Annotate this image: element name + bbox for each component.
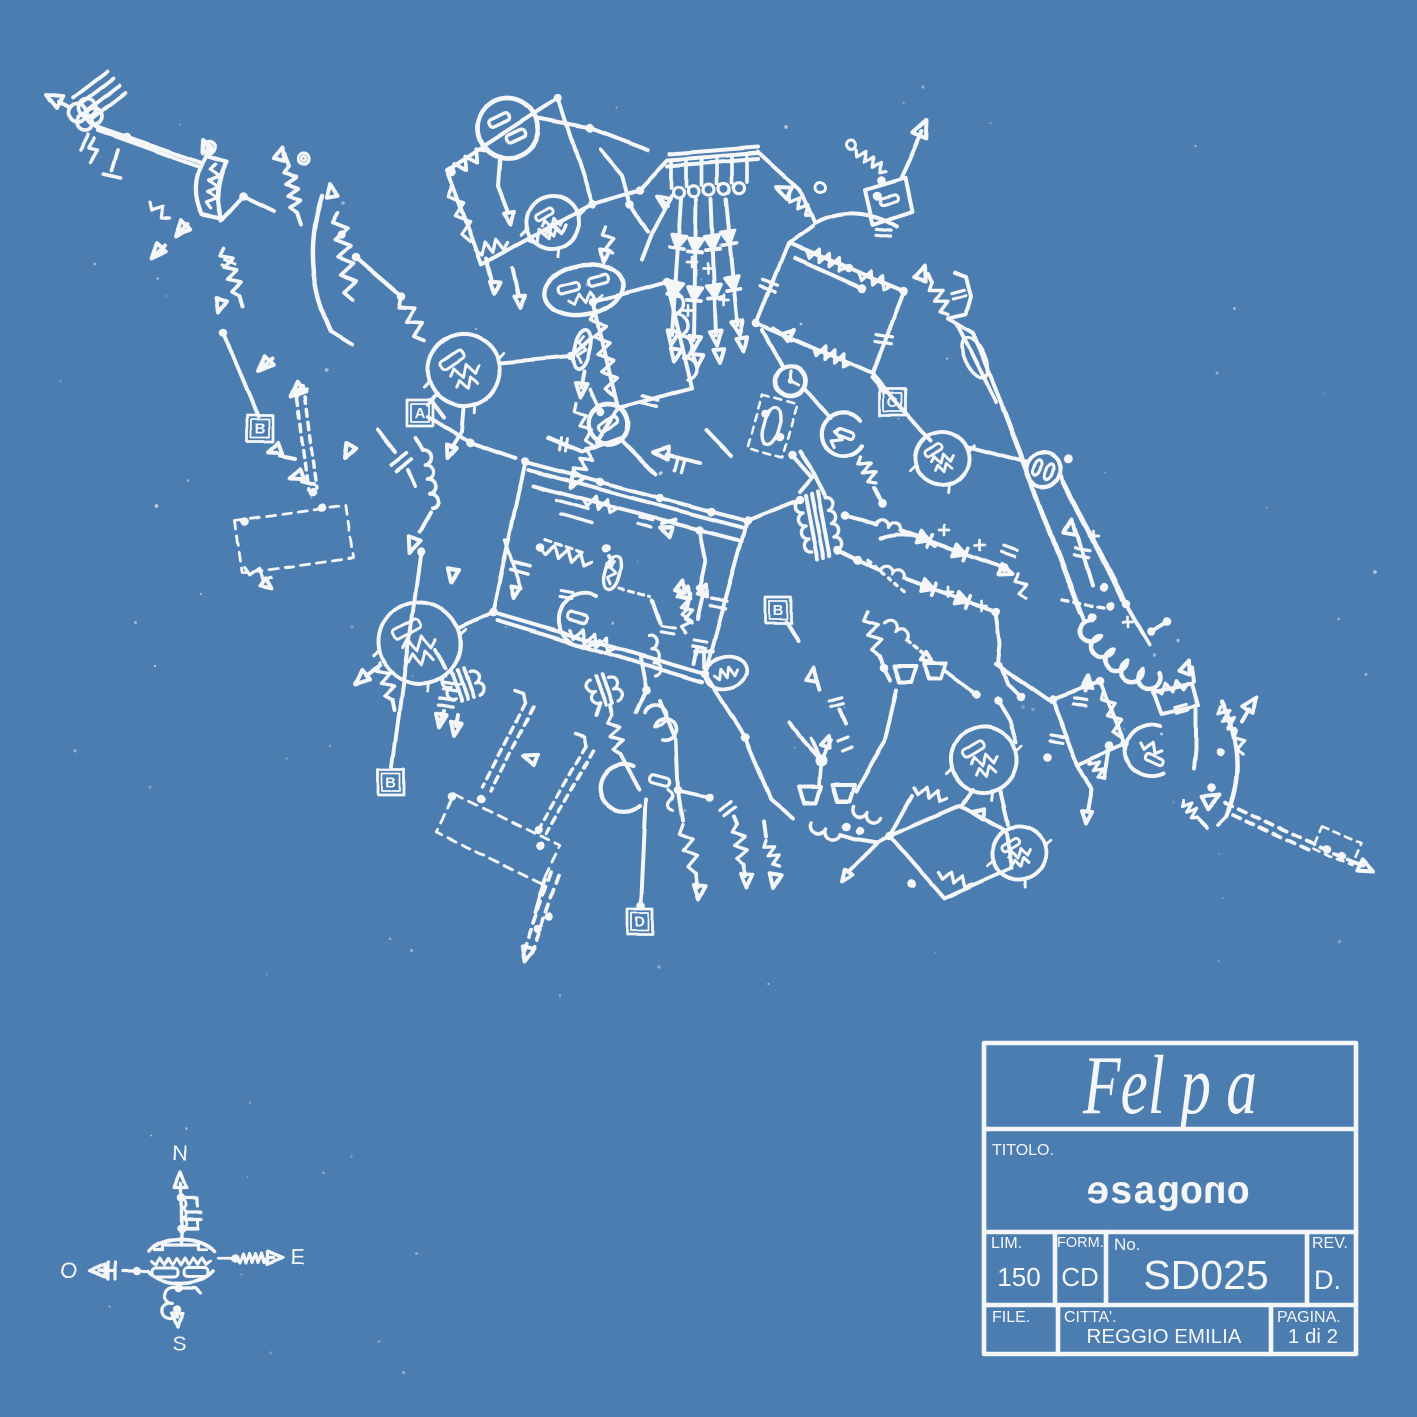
svg-text:S: S (172, 1333, 186, 1356)
svg-text:D.: D. (1314, 1265, 1341, 1295)
svg-text:a: a (1133, 1171, 1156, 1215)
svg-text:B: B (773, 602, 784, 619)
svg-text:SD025: SD025 (1143, 1252, 1268, 1298)
svg-text:D: D (635, 914, 646, 931)
svg-text:Fel p a: Fel p a (1082, 1039, 1257, 1132)
svg-text:FILE.: FILE. (992, 1309, 1030, 1326)
svg-text:150: 150 (997, 1262, 1040, 1292)
svg-text:LIM.: LIM. (991, 1235, 1022, 1252)
svg-text:E: E (290, 1245, 305, 1270)
svg-text:O: O (60, 1258, 77, 1283)
svg-text:B: B (255, 420, 266, 437)
svg-text:B: B (386, 774, 397, 791)
svg-text:TITOLO.: TITOLO. (992, 1142, 1054, 1159)
svg-text:o: o (1180, 1171, 1203, 1215)
svg-text:n: n (1203, 1171, 1226, 1215)
svg-text:1 di 2: 1 di 2 (1288, 1325, 1338, 1348)
svg-text:REV.: REV. (1312, 1235, 1348, 1252)
svg-text:e: e (1086, 1171, 1109, 1215)
svg-text:PAGINA.: PAGINA. (1277, 1309, 1341, 1326)
svg-text:CITTA'.: CITTA'. (1064, 1309, 1117, 1326)
svg-text:CD: CD (1061, 1262, 1099, 1292)
svg-text:g: g (1156, 1171, 1179, 1215)
svg-text:No.: No. (1114, 1235, 1140, 1254)
svg-text:REGGIO EMILIA: REGGIO EMILIA (1087, 1325, 1242, 1348)
svg-text:A: A (415, 405, 426, 422)
svg-text:s: s (1109, 1171, 1132, 1215)
svg-text:FORM.: FORM. (1057, 1235, 1104, 1251)
svg-text:o: o (1226, 1171, 1249, 1215)
svg-text:N: N (173, 1143, 188, 1166)
